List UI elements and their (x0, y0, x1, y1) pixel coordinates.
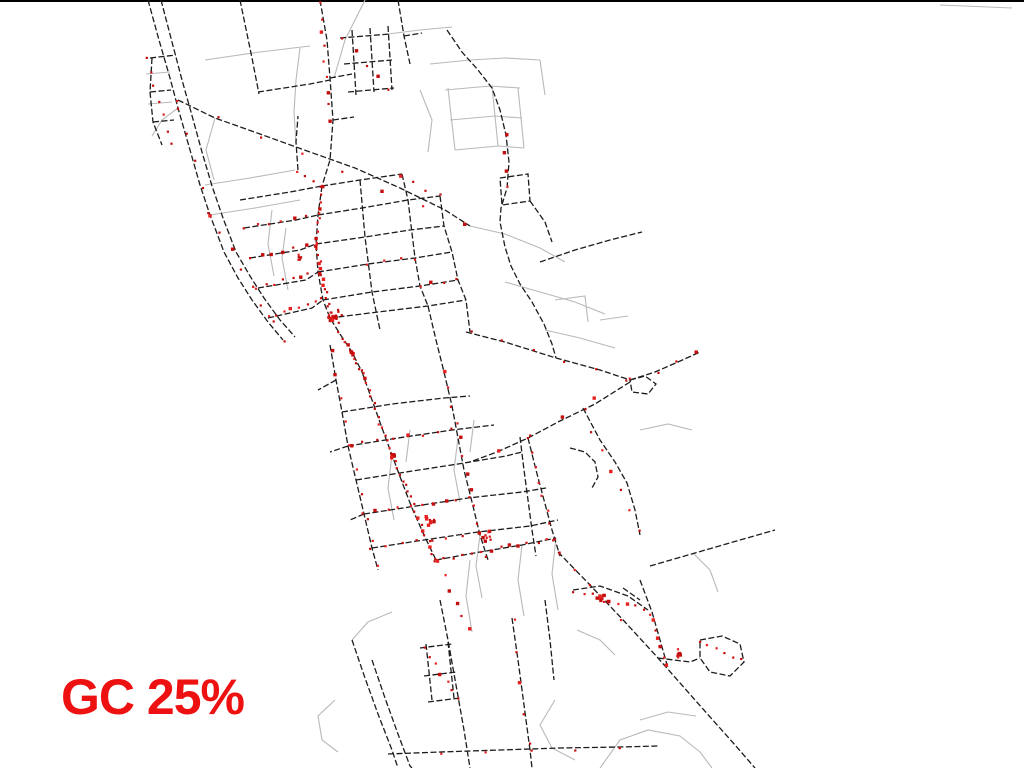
geocoded-point (261, 253, 264, 256)
geocoded-point (574, 749, 576, 751)
geocoded-point (424, 647, 426, 649)
major-road-line (148, 0, 283, 340)
geocoded-point (317, 221, 319, 223)
geocoded-point (341, 314, 343, 316)
geocoded-point (440, 753, 442, 755)
geocoded-point (503, 151, 506, 154)
major-road-line (350, 514, 364, 520)
geocoded-point (473, 505, 475, 507)
geocoded-point (657, 372, 659, 374)
geocoded-point (429, 281, 432, 284)
minor-road-line (470, 226, 565, 262)
major-road-line (153, 120, 174, 122)
geocoded-point (273, 320, 275, 322)
geocoded-point (231, 248, 234, 251)
geocoded-point (328, 314, 330, 316)
slide-canvas: GC 25% (0, 0, 1024, 768)
geocoded-point (240, 269, 242, 271)
minor-road-line (940, 5, 1012, 8)
geocoded-point (337, 331, 339, 333)
geocoded-point (358, 368, 360, 370)
geocoded-point (679, 653, 682, 656)
minor-road-line (352, 612, 392, 640)
major-road-line (344, 60, 392, 64)
major-road-line (700, 636, 744, 676)
major-road-line (333, 117, 354, 120)
geocoded-point (347, 343, 350, 346)
geocoded-point (699, 641, 701, 643)
minor-road-line (205, 170, 295, 185)
geocoded-point (325, 297, 327, 299)
geocoded-point (501, 339, 503, 341)
geocoded-point (158, 101, 160, 103)
geocoded-point (603, 594, 606, 597)
geocoded-point (421, 529, 424, 532)
geocoded-point (270, 253, 273, 256)
geocoded-point (438, 673, 441, 676)
geocoded-point (328, 120, 331, 123)
geocoded-point (416, 539, 418, 541)
geocoded-point (298, 307, 300, 309)
geocoded-point (318, 212, 320, 214)
geocoded-point (320, 297, 322, 299)
geocoded-point (497, 449, 500, 452)
geocoded-point (413, 503, 415, 505)
geocoded-point (355, 49, 358, 52)
geocoded-point (505, 169, 508, 172)
geocoded-point (186, 133, 188, 135)
geocoded-point (412, 181, 414, 183)
geocoded-point (455, 278, 457, 280)
geocoded-point (525, 542, 527, 544)
geocoded-point (320, 201, 322, 203)
major-road-line (436, 538, 556, 560)
geocoded-point (320, 30, 323, 33)
geocoded-point (316, 242, 318, 244)
major-road-line (356, 452, 522, 480)
geocoded-point (296, 171, 298, 173)
geocoded-point (361, 493, 363, 495)
geocoded-point (461, 554, 463, 556)
major-road-line (150, 55, 176, 58)
geocoded-point (208, 214, 211, 217)
geocoded-point (629, 378, 631, 380)
geocoded-point (601, 449, 603, 451)
geocoded-point (508, 543, 511, 546)
geocoded-point (305, 243, 308, 246)
geocoded-point (363, 377, 366, 380)
geocoded-point (319, 267, 322, 270)
geocoded-point (299, 276, 302, 279)
geocoded-point (546, 538, 548, 540)
major-road-line (362, 372, 436, 560)
geocoded-point (607, 600, 610, 603)
geocoded-point (396, 467, 398, 469)
geocoded-point (598, 594, 601, 597)
geocoded-point (321, 19, 323, 21)
geocoded-point (523, 713, 525, 715)
geocoded-point (422, 435, 424, 437)
geocoded-point (146, 57, 148, 59)
major-road-line (630, 352, 700, 380)
minor-road-line (206, 118, 215, 180)
geocoded-point (365, 382, 367, 384)
geocoded-point (150, 71, 152, 73)
major-road-line (545, 600, 554, 680)
geocoded-point (410, 505, 412, 507)
geocoded-point (385, 435, 387, 437)
major-road-line (348, 88, 394, 92)
geocoded-point (603, 601, 605, 603)
geocoded-point (327, 91, 330, 94)
geocoded-point (369, 548, 371, 550)
geocoded-point (447, 386, 449, 388)
geocoded-point (273, 284, 275, 286)
geocoded-point (431, 540, 433, 542)
geocoded-point (163, 114, 165, 116)
geocoded-point (374, 408, 376, 410)
geocoded-point (268, 315, 270, 317)
geocoded-point (706, 644, 708, 646)
major-road-line (404, 33, 422, 36)
geocoded-point (468, 627, 471, 630)
geocoded-point (617, 603, 619, 605)
geocoded-point (437, 431, 439, 433)
geocoded-point (334, 315, 337, 318)
geocoded-point (561, 415, 564, 418)
major-road-line (330, 300, 466, 318)
geocoded-point (399, 474, 401, 476)
geocoded-point (402, 481, 404, 483)
geocoded-point (423, 534, 425, 536)
geocoded-point (381, 426, 383, 428)
geocoded-point (538, 542, 540, 544)
major-road-line (320, 0, 333, 186)
geocoded-point (317, 254, 319, 256)
geocoded-point (405, 484, 407, 486)
geocoded-point (387, 439, 389, 441)
minor-road-line (466, 560, 472, 632)
geocoded-point (327, 316, 329, 318)
geocoded-point (430, 553, 432, 555)
geocoded-point (322, 278, 325, 281)
geocoded-point (323, 45, 325, 47)
geocoded-point (321, 185, 324, 188)
geocoded-point (639, 530, 641, 532)
major-road-line (240, 186, 322, 200)
major-road-line (466, 332, 630, 380)
geocoded-point (306, 272, 308, 274)
geocoded-point (436, 559, 439, 562)
geocoded-point (321, 284, 324, 287)
geocoded-point (457, 698, 459, 700)
minor-road-line (448, 88, 455, 150)
minor-road-line (445, 86, 520, 90)
geocoded-point (329, 318, 331, 320)
geocoded-point (266, 283, 268, 285)
major-road-line (352, 640, 398, 768)
major-road-line (178, 100, 470, 226)
geocoded-point (414, 259, 416, 261)
geocoded-point (663, 657, 665, 659)
geocoded-point (434, 560, 436, 562)
major-road-line (240, 0, 259, 94)
geocoded-point (376, 439, 378, 441)
geocoded-point (563, 361, 565, 363)
geocoded-point (298, 254, 300, 256)
geocoded-point (592, 593, 594, 595)
geocoded-point (305, 215, 307, 217)
geocoded-point (665, 664, 668, 667)
major-road-line (296, 116, 298, 170)
geocoded-point (450, 406, 452, 408)
geocoded-point (400, 257, 402, 259)
major-road-line (330, 345, 378, 570)
major-road-line (570, 448, 598, 488)
geocoded-point (505, 133, 508, 136)
geocoded-point (459, 436, 462, 439)
geocoded-point (369, 395, 371, 397)
geocoded-point (372, 540, 374, 542)
geocoded-point (445, 537, 447, 539)
geocoded-point (442, 557, 444, 559)
geocoded-point (366, 264, 368, 266)
geocoded-point (326, 76, 328, 78)
major-road-line (640, 580, 668, 668)
major-road-line (470, 382, 630, 462)
major-road-line (520, 437, 536, 556)
geocoded-point (337, 311, 339, 313)
geocoded-point (377, 565, 379, 567)
geocoded-point (283, 310, 285, 312)
geocoded-point (299, 257, 301, 259)
geocoded-point (257, 223, 259, 225)
geocoded-point (540, 495, 542, 497)
geocoded-point (435, 662, 437, 664)
geocoded-point (369, 389, 371, 391)
geocoded-point (625, 380, 627, 382)
minor-road-line (640, 424, 692, 430)
geocoded-point (677, 648, 679, 650)
geocoded-point (626, 602, 629, 605)
geocoded-point (455, 499, 457, 501)
geocoded-point (552, 539, 554, 541)
geocoded-point (328, 303, 330, 305)
geocoded-point (410, 495, 412, 497)
major-road-line (258, 80, 330, 92)
geocoded-point (547, 510, 549, 512)
major-road-line (440, 600, 470, 768)
minor-road-line (318, 700, 338, 752)
geocoded-point (330, 312, 332, 314)
geocoded-point (152, 85, 154, 87)
geocoded-point (378, 423, 380, 425)
minor-road-line (470, 420, 474, 452)
geocoded-point (380, 190, 383, 193)
geocoded-point (392, 438, 394, 440)
geocoded-point (514, 619, 516, 621)
minor-road-line (693, 553, 718, 592)
geocoded-point (471, 330, 473, 332)
major-road-line (402, 174, 428, 306)
minor-road-line (388, 27, 452, 34)
geocoded-point (533, 349, 535, 351)
geocoded-point (252, 286, 254, 288)
geocoded-point (320, 194, 322, 196)
geocoded-point (333, 373, 336, 376)
geocoded-point (313, 180, 315, 182)
geocoded-point (373, 509, 376, 512)
major-road-line (318, 196, 440, 215)
street-network-map (0, 0, 1024, 768)
geocoded-point (527, 437, 529, 439)
geocoded-point (341, 37, 343, 39)
major-road-line (500, 174, 530, 205)
geocoded-point (428, 545, 431, 548)
geocoded-point (421, 524, 423, 526)
minor-road-line (205, 46, 310, 60)
major-road-line (370, 28, 374, 92)
geocoded-point (468, 496, 470, 498)
geocoded-point (167, 131, 169, 133)
geocoded-point (478, 531, 481, 534)
geocoded-point (656, 637, 659, 640)
geocoded-point (391, 456, 393, 458)
geocoded-point (484, 534, 486, 536)
geocoded-point (387, 89, 389, 91)
geocoded-point (331, 319, 334, 322)
geocoded-point (574, 569, 576, 571)
major-road-line (530, 201, 552, 242)
geocoded-point (476, 523, 478, 525)
geocoded-point (315, 248, 317, 250)
minor-road-line (430, 58, 540, 64)
geocoded-point (448, 589, 451, 592)
geocoded-point (443, 370, 446, 373)
geocoded-point (649, 614, 651, 616)
geocoded-point (471, 553, 473, 555)
geocoded-point (538, 482, 540, 484)
geocoded-point (518, 681, 521, 684)
geocoded-point (500, 546, 502, 548)
minor-road-line (146, 72, 170, 74)
geocoded-point (399, 174, 402, 177)
major-road-line (323, 280, 458, 300)
geocoded-point (445, 499, 448, 502)
geocoded-point (531, 750, 533, 752)
major-road-line (330, 446, 348, 452)
geocoded-point (529, 743, 531, 745)
geocoded-point (353, 358, 355, 360)
geocoded-point (429, 656, 431, 658)
major-road-line (316, 226, 444, 244)
geocoded-point (599, 599, 602, 602)
geocoded-point (275, 315, 277, 317)
minor-road-line (454, 438, 460, 502)
geocoded-point (490, 539, 492, 541)
geocoded-point (634, 604, 636, 606)
geocoded-point (609, 470, 612, 473)
geocoded-point (620, 489, 622, 491)
geocoded-point (432, 502, 435, 505)
minor-road-line (518, 545, 524, 616)
major-road-line (318, 252, 452, 272)
geocoded-point (268, 223, 270, 225)
geocoded-point (413, 511, 415, 513)
geocoded-point (284, 340, 286, 342)
major-road-line (540, 232, 642, 262)
geocoded-point (304, 175, 306, 177)
geocoded-point (280, 220, 282, 222)
geocoded-point (406, 490, 408, 492)
minor-road-line (505, 282, 605, 314)
minor-road-line (555, 296, 588, 322)
geocoded-point (593, 396, 596, 399)
geocoded-point (584, 408, 586, 410)
geocoded-point (344, 341, 346, 343)
geocoded-point (367, 518, 369, 520)
geocoded-point (619, 747, 621, 749)
geocoded-point (406, 433, 409, 436)
geocoded-point (590, 431, 592, 433)
geocoded-point (202, 187, 204, 189)
geocoded-point (327, 103, 329, 105)
geocoded-point (378, 416, 380, 418)
geocoded-point (516, 544, 519, 547)
geocoded-point (341, 171, 343, 173)
minor-road-line (210, 200, 300, 215)
geocoded-point (388, 509, 390, 511)
geocoded-point (655, 629, 657, 631)
geocoded-point (506, 186, 508, 188)
geocoded-point (461, 455, 463, 457)
geocoded-point (529, 434, 531, 436)
geocoded-point (314, 237, 317, 240)
geocoded-point (463, 223, 466, 226)
geocoded-point (450, 428, 452, 430)
geocoded-point (484, 540, 487, 543)
geocoded-point (307, 303, 309, 305)
geocoded-point (723, 652, 725, 654)
geocoded-point (317, 231, 319, 233)
geocoded-point (643, 609, 645, 611)
geocoded-point (443, 282, 445, 284)
geocoded-point (281, 251, 284, 254)
geocoded-point (331, 349, 334, 352)
geocoded-point (558, 553, 560, 555)
geocoded-point (376, 75, 379, 78)
geocoded-point (207, 212, 209, 214)
geocoded-point (218, 232, 220, 234)
geocoded-point (315, 300, 317, 302)
geocoded-point (249, 257, 251, 259)
geocoded-point (652, 618, 655, 621)
geocoded-point (490, 549, 493, 552)
geocoded-point (363, 372, 365, 374)
geocoded-point (374, 402, 376, 404)
geocoded-point (301, 153, 303, 155)
minor-road-line (476, 535, 482, 598)
major-road-line (330, 74, 352, 78)
geocoded-point (456, 602, 459, 605)
geocoded-point (460, 615, 462, 617)
geocoded-point (326, 291, 328, 293)
geocoded-point (361, 441, 363, 443)
minor-road-line (540, 700, 575, 760)
geocoded-point (293, 217, 296, 220)
geocoded-point (292, 247, 294, 249)
geocoded-point (445, 574, 447, 576)
